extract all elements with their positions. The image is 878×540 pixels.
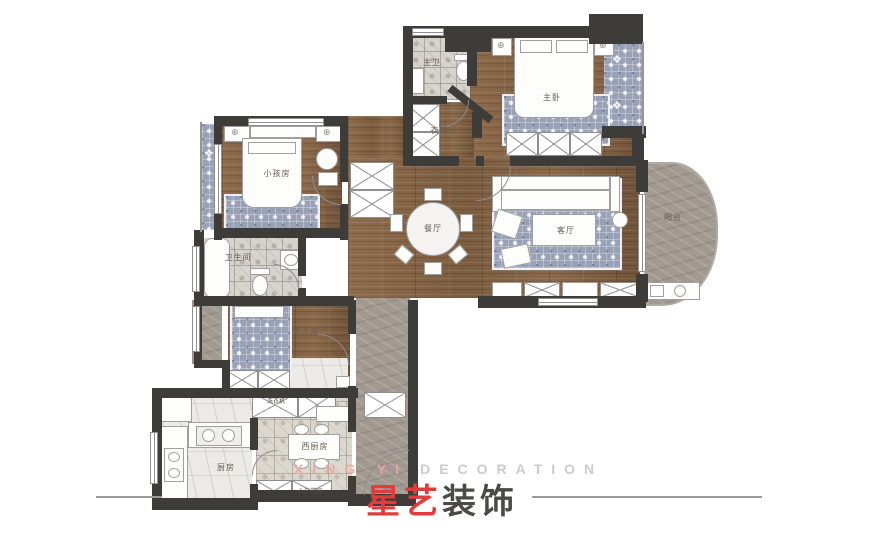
- wall-segment: [510, 156, 642, 166]
- toilet-tank: [250, 268, 270, 275]
- wall-segment: [403, 156, 459, 166]
- elder-wardrobe: [258, 370, 290, 390]
- sofa-armrest: [610, 176, 620, 212]
- window: [192, 306, 200, 352]
- room-label-dining: 餐厅: [424, 225, 442, 233]
- brand-logo-red: 星艺: [366, 482, 442, 522]
- lamp-icon: ⊕: [231, 129, 239, 138]
- room-label-master-bath: 主卫: [423, 59, 441, 67]
- balcony-rail: [200, 122, 202, 232]
- wall-segment: [348, 300, 356, 334]
- brand-logo-dark: 装饰: [442, 482, 518, 522]
- master-pillow: [520, 40, 552, 53]
- window: [150, 432, 158, 484]
- floor-plan-canvas: ❖ ❖ ❖ ⊕ ⊕ ⊕ ⊕: [0, 0, 878, 540]
- wall-segment: [636, 160, 648, 192]
- balcony-rail: [642, 42, 644, 134]
- wall-segment: [589, 14, 643, 44]
- elder-wardrobe: [226, 370, 258, 390]
- kids-side-table: [316, 148, 338, 170]
- dining-chair: [390, 214, 403, 232]
- room-label-kids-room: 小孩房: [264, 170, 291, 178]
- lamp-icon: ⊕: [323, 129, 331, 138]
- room-label-balcony: 阳台: [664, 214, 682, 222]
- wall-segment: [348, 386, 356, 432]
- kids-pillow: [248, 142, 296, 154]
- wall-segment: [202, 296, 354, 306]
- dining-chair: [424, 262, 442, 275]
- fridge: [160, 396, 192, 422]
- wall-segment: [445, 26, 491, 52]
- master-wardrobe: [570, 132, 602, 156]
- balcony-sliding-door: [638, 194, 646, 272]
- west-kitchen-counter: [316, 406, 352, 422]
- wall-segment: [636, 274, 648, 302]
- stove-burner: [222, 429, 235, 442]
- balcony-sink: [674, 285, 686, 297]
- ornament-diamond: ❖: [612, 100, 622, 111]
- dining-chair: [424, 188, 442, 201]
- window: [412, 28, 444, 36]
- elder-pillow: [234, 306, 284, 318]
- sofa-seat: [500, 190, 610, 210]
- wall-segment: [218, 228, 348, 238]
- wall-segment: [476, 156, 484, 166]
- brand-logo: 星艺装饰: [366, 474, 518, 523]
- shaft-cabinet: [350, 162, 394, 190]
- fixture-label-washer: 洗衣机: [267, 399, 285, 405]
- ornament-diamond: ❖: [204, 148, 214, 159]
- wall-segment: [250, 418, 258, 450]
- dining-chair: [460, 214, 473, 232]
- sink-basin: [168, 452, 180, 462]
- sink-basin: [168, 468, 180, 478]
- room-label-cloakroom: 衣帽间: [431, 127, 458, 135]
- master-wardrobe: [506, 132, 538, 156]
- wall-segment: [298, 238, 306, 276]
- room-label-west-kitchen: 西厨房: [302, 443, 329, 451]
- bathtub: [204, 238, 230, 298]
- window: [248, 118, 324, 126]
- wall-segment: [340, 124, 348, 182]
- wall-segment: [152, 388, 226, 398]
- wall-segment: [467, 50, 477, 86]
- room-label-bathroom: 卫生间: [225, 254, 252, 262]
- lamp-icon: ⊕: [497, 42, 505, 51]
- sink-basin: [284, 254, 298, 266]
- corridor-cabinet: [364, 392, 406, 418]
- wall-segment: [472, 112, 482, 138]
- wall-segment: [403, 96, 447, 104]
- side-table: [612, 212, 628, 228]
- room-label-elder-room: 老人房: [293, 328, 320, 336]
- wall-segment: [222, 388, 358, 398]
- window: [192, 246, 200, 292]
- stove-burner: [202, 429, 215, 442]
- sofa-back: [500, 176, 610, 190]
- toilet-bowl: [252, 275, 268, 296]
- wall-segment: [152, 498, 258, 510]
- window: [214, 144, 222, 214]
- fixture-label-entry: 入户花园: [298, 489, 322, 495]
- shaft-cabinet: [350, 190, 394, 218]
- window: [538, 298, 598, 306]
- room-label-living: 客厅: [557, 227, 575, 235]
- master-pillow: [556, 40, 588, 53]
- balcony-appliance: [650, 285, 664, 297]
- master-wardrobe: [538, 132, 570, 156]
- divider-line-right: [532, 496, 762, 498]
- room-label-master-bedroom: 主卧: [543, 94, 561, 102]
- divider-line-left: [96, 496, 162, 498]
- hall-top-floor: [348, 116, 408, 162]
- kids-shelf: [250, 126, 316, 138]
- room-label-kitchen: 厨房: [217, 464, 235, 472]
